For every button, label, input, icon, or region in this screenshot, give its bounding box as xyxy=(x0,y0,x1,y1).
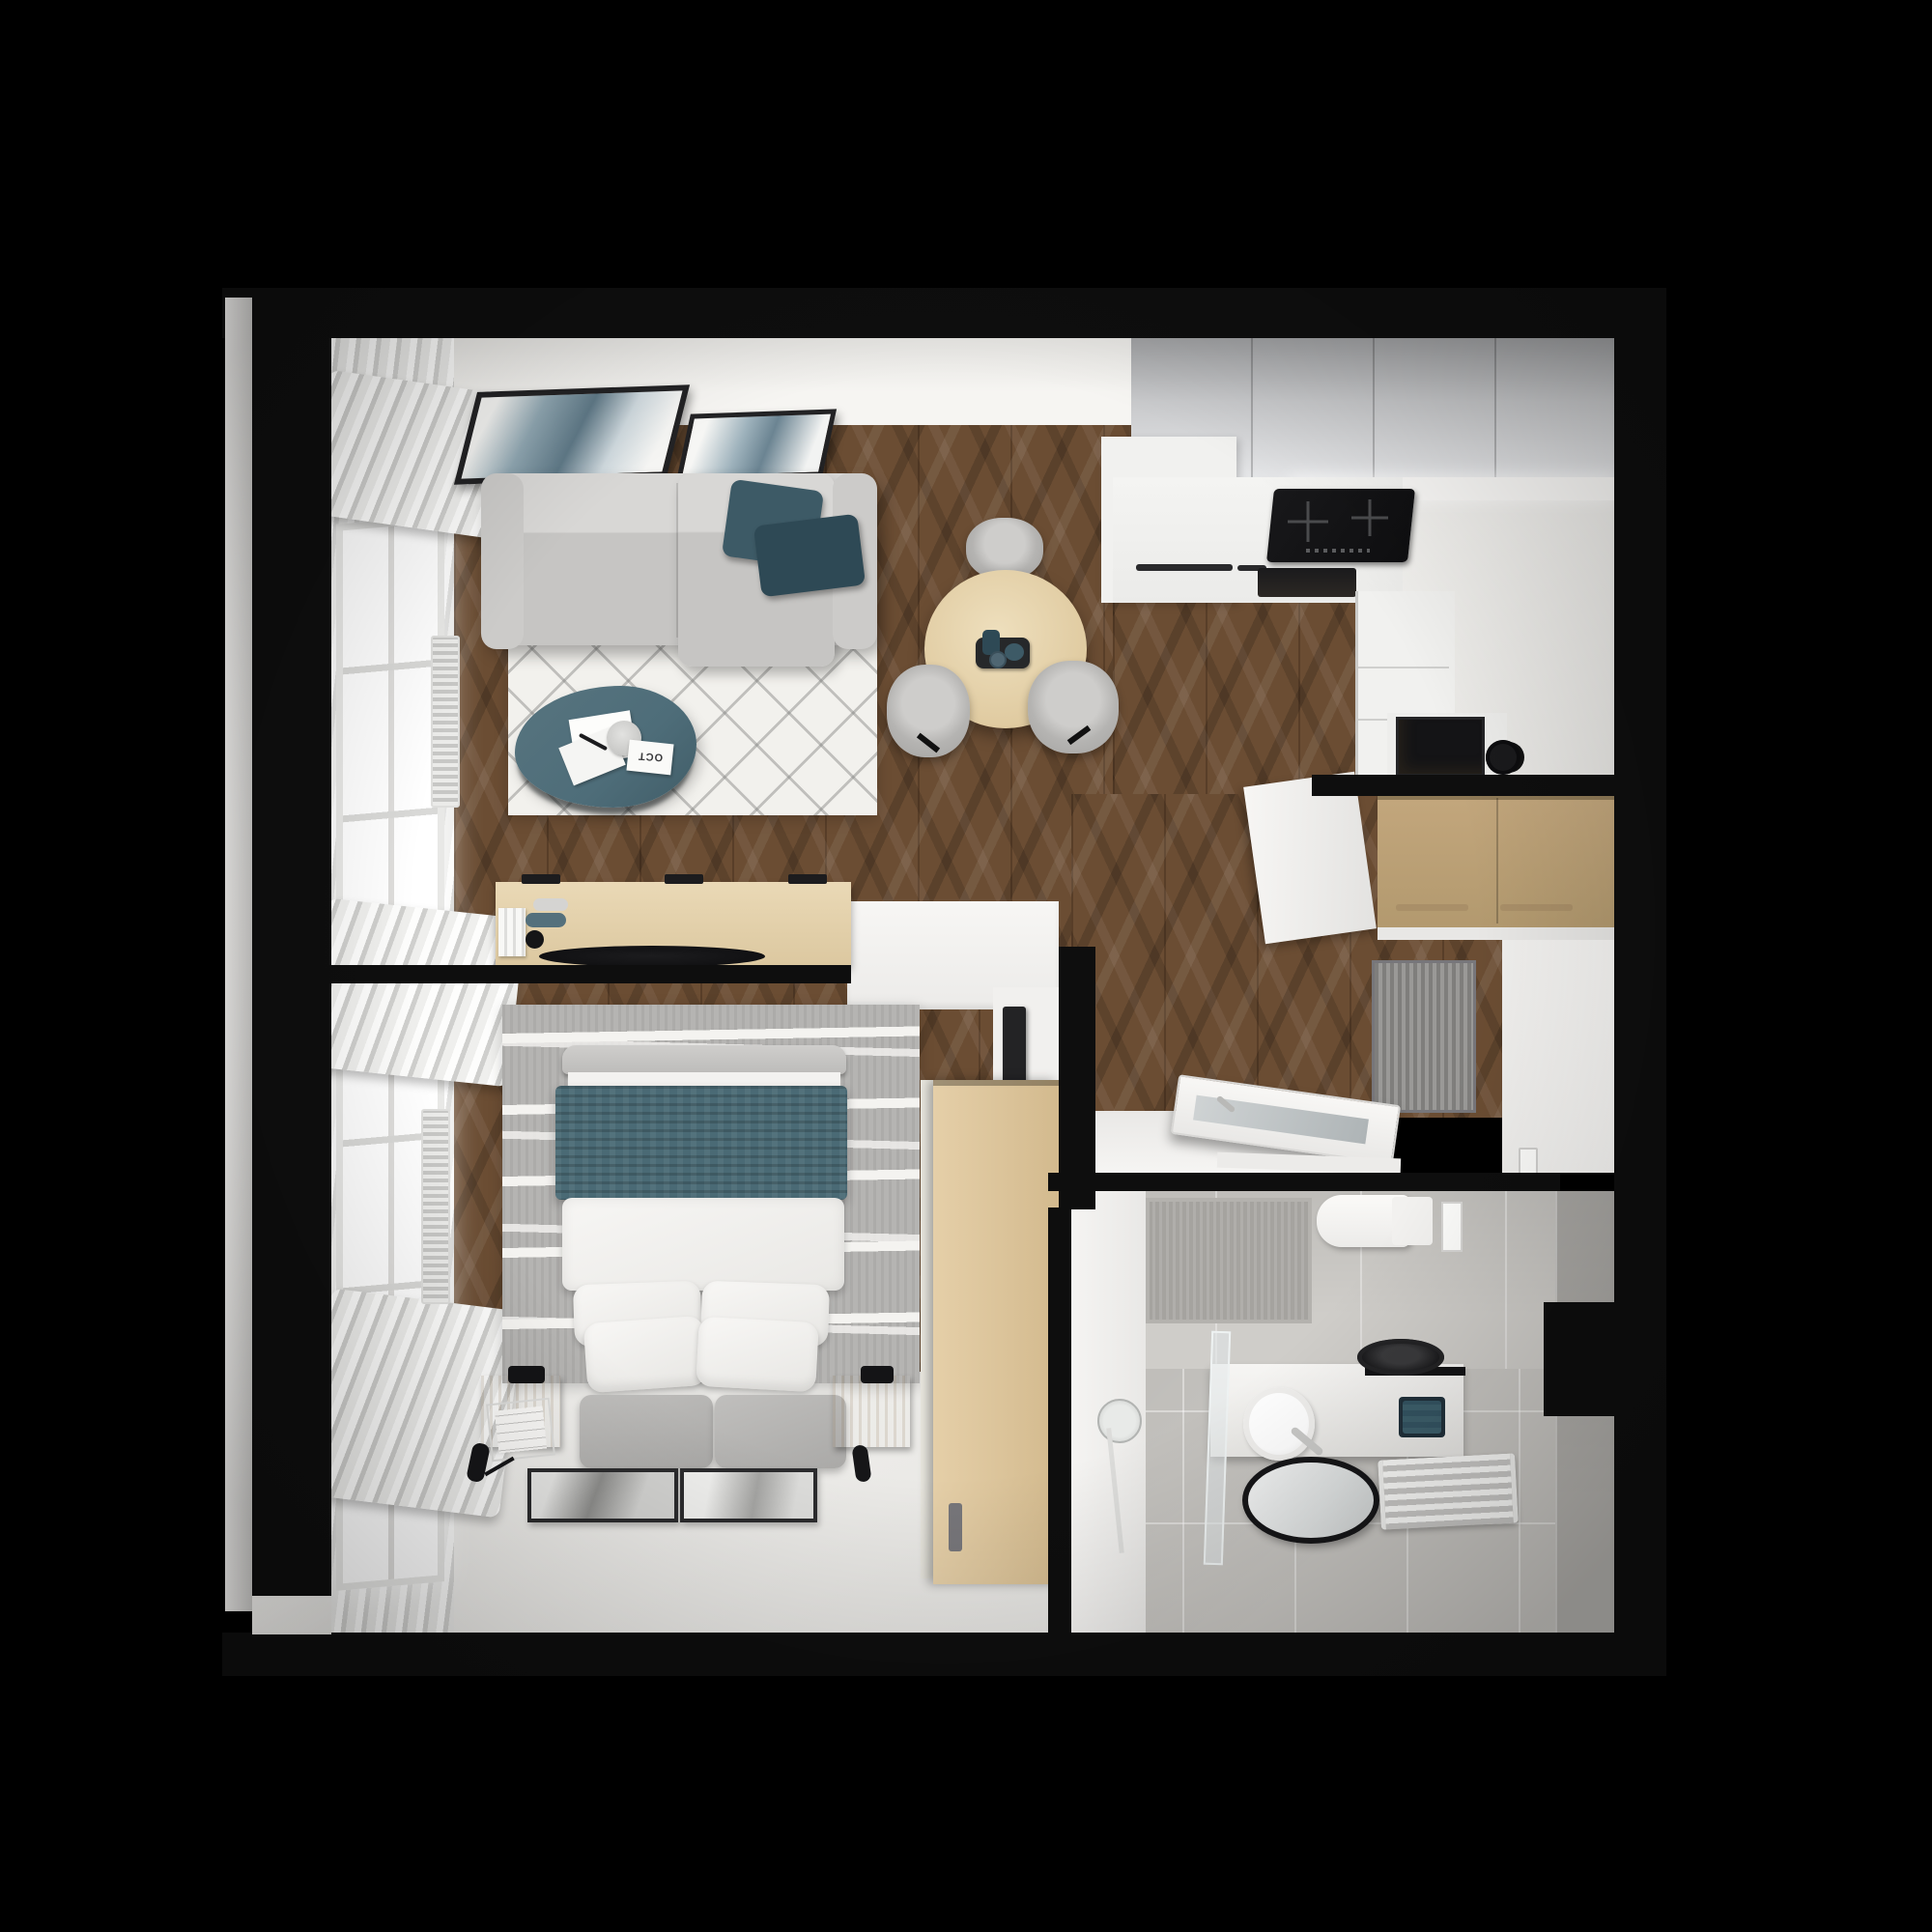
living-radiator xyxy=(431,636,460,808)
foot-bench-cushion-2 xyxy=(715,1395,846,1468)
leaning-frame-1 xyxy=(527,1468,678,1522)
closet-handle-1 xyxy=(1396,904,1468,911)
oval-mirror xyxy=(1242,1457,1379,1544)
built-in-oven xyxy=(1258,568,1356,597)
entry-closet-divider xyxy=(1496,798,1498,923)
wall-art-small xyxy=(676,409,837,481)
sideboard-books xyxy=(498,908,526,956)
leaning-frame-2 xyxy=(680,1468,817,1522)
floor-plan-scene: OCT xyxy=(0,0,1932,1932)
bottom-left-floor-wrap xyxy=(252,1592,331,1634)
wall-left-outer-edge xyxy=(225,298,252,1611)
teal-cushion-2 xyxy=(753,514,866,598)
counter-handle-strip-1 xyxy=(1136,564,1233,571)
leaning-poster xyxy=(486,1398,555,1463)
foot-bench-cushion-1 xyxy=(580,1395,713,1468)
wall-kitchen-bottom xyxy=(1312,775,1616,796)
magazine-title: OCT xyxy=(627,740,673,772)
speaker-gray xyxy=(533,898,568,911)
black-decor-bowl xyxy=(539,946,765,967)
teal-cup-2 xyxy=(1005,643,1024,661)
wall-right xyxy=(1614,288,1666,1676)
wardrobe-handle xyxy=(949,1503,962,1551)
wall-art-large xyxy=(454,384,690,485)
wall-bathroom-top xyxy=(1048,1173,1560,1191)
counter-drawer-seam-1 xyxy=(1358,667,1449,668)
shower-wall-tiles xyxy=(1146,1198,1312,1323)
wall-bottom xyxy=(222,1633,1666,1676)
gray-cup xyxy=(989,651,1007,668)
bed-headboard xyxy=(562,1045,846,1074)
wardrobe-mirror-sliver xyxy=(921,1080,933,1578)
nightstand-right xyxy=(833,1376,910,1447)
towel-radiator xyxy=(1378,1453,1519,1529)
wall-bedroom-hallway xyxy=(1059,947,1095,1209)
teal-towel xyxy=(1403,1401,1441,1434)
cooktop-controls xyxy=(1306,549,1370,553)
closet-sill xyxy=(1378,927,1616,940)
bedroom-radiator xyxy=(421,1109,450,1304)
bed-pillow-4 xyxy=(696,1317,819,1392)
doormat xyxy=(1372,960,1476,1113)
microwave-niche xyxy=(1396,717,1485,777)
wall-bathroom-notch xyxy=(1544,1302,1616,1416)
black-kettle xyxy=(1486,740,1520,775)
sofa-armrest-left xyxy=(481,473,524,649)
sideboard-tab-1 xyxy=(522,874,560,884)
hall-right-wall-face xyxy=(1502,940,1614,1173)
magazine-oct: OCT xyxy=(626,740,673,776)
closet-handle-2 xyxy=(1500,904,1573,911)
wall-living-bedroom-divider xyxy=(329,965,851,983)
sideboard-tab-2 xyxy=(665,874,703,884)
bed-duvet xyxy=(562,1198,844,1291)
tv-screen xyxy=(1003,1007,1026,1086)
flush-plate xyxy=(1441,1202,1463,1252)
burner-cross-right xyxy=(1349,497,1391,539)
curtain-folds-middle xyxy=(310,898,525,1087)
kitchen-end-panel xyxy=(1243,772,1377,945)
kitchen-floor xyxy=(1113,594,1375,797)
wall-left xyxy=(252,311,331,1596)
sideboard-tab-3 xyxy=(788,874,827,884)
bed-pillow-3 xyxy=(583,1316,708,1393)
burner-cross-left xyxy=(1285,498,1331,545)
black-vessel-basin xyxy=(1357,1339,1444,1376)
bed-teal-blanket xyxy=(555,1086,847,1200)
toilet-cistern xyxy=(1392,1197,1433,1245)
wall-bathroom-left xyxy=(1048,1207,1071,1636)
speaker-teal xyxy=(526,913,566,927)
shower-head xyxy=(1097,1399,1142,1443)
sofa-seat-seam xyxy=(676,483,678,638)
nightstand-left-lamp xyxy=(508,1366,545,1383)
white-round-sink xyxy=(1243,1387,1315,1461)
decor-knob xyxy=(526,930,544,949)
wall-top xyxy=(222,288,1666,338)
nightstand-right-lamp xyxy=(861,1366,894,1383)
